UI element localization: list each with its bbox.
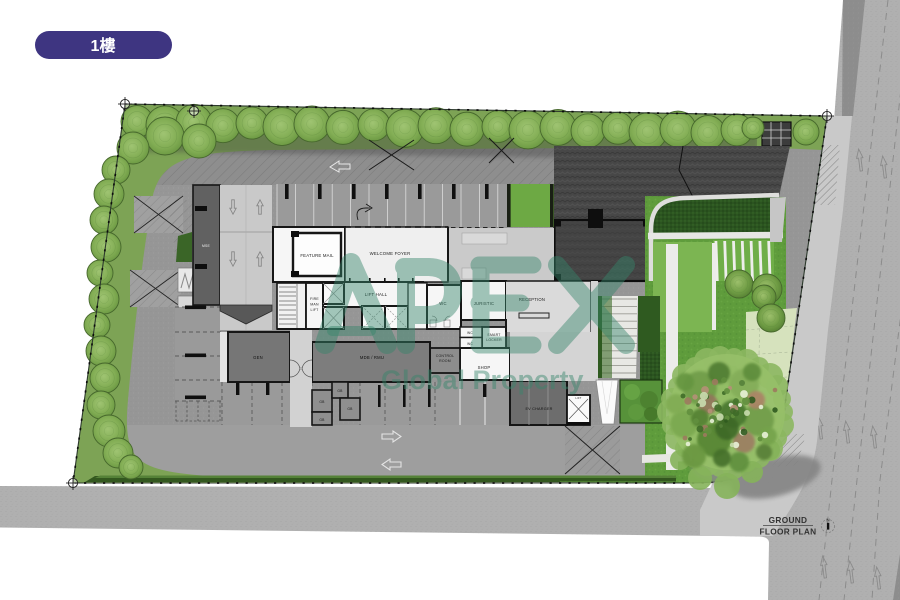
svg-text:ROOM: ROOM [439, 359, 451, 363]
svg-text:MDB / RMU: MDB / RMU [360, 355, 384, 360]
svg-text:GB: GB [347, 407, 353, 411]
svg-text:MSE: MSE [202, 244, 210, 248]
svg-text:FIRE: FIRE [310, 297, 319, 301]
svg-text:GEN: GEN [253, 355, 263, 360]
svg-text:MAN: MAN [310, 303, 319, 307]
svg-text:GB: GB [319, 400, 325, 404]
svg-text:EV CHARGER: EV CHARGER [525, 407, 552, 411]
svg-text:LIFT: LIFT [311, 308, 320, 312]
svg-text:FEATURE MAIL: FEATURE MAIL [300, 253, 334, 258]
svg-text:CONTROL: CONTROL [436, 354, 455, 358]
svg-text:FLOOR PLAN: FLOOR PLAN [760, 527, 817, 537]
svg-text:GB: GB [337, 389, 343, 393]
svg-text:GROUND: GROUND [769, 515, 808, 525]
svg-text:WELCOME FOYER: WELCOME FOYER [370, 251, 411, 256]
svg-text:GB: GB [319, 418, 325, 422]
svg-text:LIFT: LIFT [575, 396, 581, 400]
svg-text:1樓: 1樓 [91, 36, 116, 55]
svg-text:Global Property: Global Property [381, 365, 584, 395]
svg-text:WC: WC [467, 331, 473, 335]
svg-text:N: N [826, 518, 829, 523]
